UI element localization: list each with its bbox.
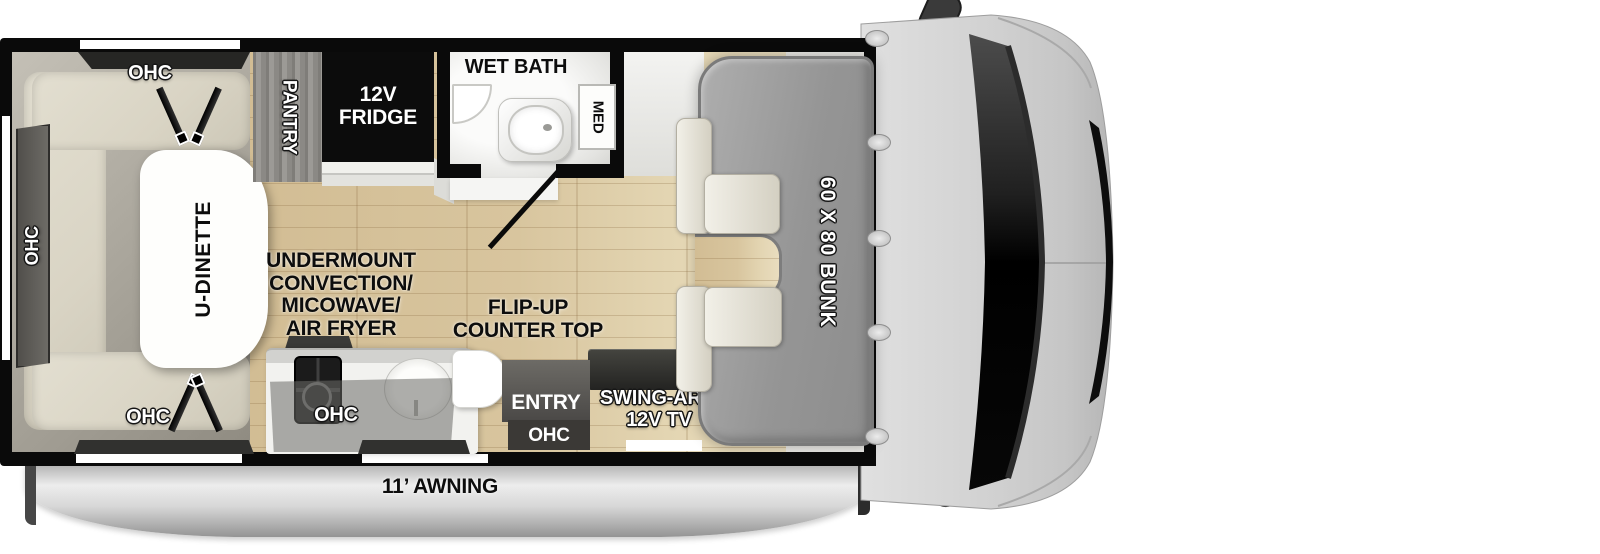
ohc-label-entry: OHC bbox=[519, 426, 579, 447]
cab-seat-bottom-cushion bbox=[704, 287, 782, 347]
fridge-counter-band2 bbox=[322, 175, 434, 186]
undermount-appliance-label: UNDERMOUNT CONVECTION/ MICOWAVE/ AIR FRY… bbox=[238, 250, 444, 341]
cab-seat-top-cushion bbox=[704, 174, 780, 234]
window-top bbox=[80, 40, 240, 49]
ohc-label-top: OHC bbox=[118, 63, 182, 85]
dinette-table-label: U-DINETTE bbox=[193, 201, 216, 318]
window-bottom-dinette bbox=[76, 454, 242, 463]
attachment-knob bbox=[867, 134, 891, 151]
bunk-label: 60 X 80 BUNK bbox=[815, 177, 838, 328]
ohc-label-kitchen: OHC bbox=[306, 405, 366, 427]
fridge-label: 12V FRIDGE bbox=[339, 84, 417, 129]
wet-bath-label: WET BATH bbox=[455, 57, 577, 79]
wet-bath-wall-bottom-right bbox=[556, 164, 624, 178]
wet-bath-wall-bottom-left bbox=[437, 164, 481, 178]
fridge: 12V FRIDGE bbox=[322, 52, 434, 162]
window-rear bbox=[2, 116, 10, 360]
awning-left-cap bbox=[25, 463, 36, 525]
vehicle-cab bbox=[853, 0, 1133, 554]
ohc-label-bottom: OHC bbox=[116, 407, 180, 429]
attachment-knob bbox=[865, 30, 889, 47]
toilet-flush bbox=[543, 124, 552, 131]
pantry-label: PANTRY bbox=[278, 80, 299, 155]
rear-ohc-panel: OHC bbox=[16, 124, 50, 368]
rv-floorplan: 11’ AWNING OHC bbox=[0, 0, 1600, 554]
toilet-bowl bbox=[508, 105, 564, 155]
pantry-cabinet: PANTRY bbox=[253, 52, 323, 182]
attachment-knob bbox=[867, 324, 891, 341]
kitchen-sill bbox=[358, 440, 470, 454]
attachment-knob bbox=[865, 428, 889, 445]
ohc-rear-label: OHC bbox=[23, 226, 42, 265]
flip-up-counter-label: FLIP-UP COUNTER TOP bbox=[428, 297, 628, 342]
fridge-counter-band bbox=[322, 162, 434, 175]
wet-bath-wall-left bbox=[437, 52, 450, 178]
window-bottom-kitchen bbox=[362, 454, 488, 463]
attachment-knob bbox=[867, 230, 891, 247]
entry-label: ENTRY bbox=[504, 392, 588, 415]
entry-window-sliver bbox=[626, 440, 702, 451]
flip-up-extension bbox=[452, 350, 506, 408]
med-cabinet-label: MED bbox=[589, 101, 605, 134]
bunk-label-holder: 60 X 80 BUNK bbox=[796, 145, 856, 359]
med-cabinet: MED bbox=[578, 84, 616, 150]
dinette-sill bbox=[74, 440, 254, 454]
awning-label: 11’ AWNING bbox=[358, 476, 522, 499]
